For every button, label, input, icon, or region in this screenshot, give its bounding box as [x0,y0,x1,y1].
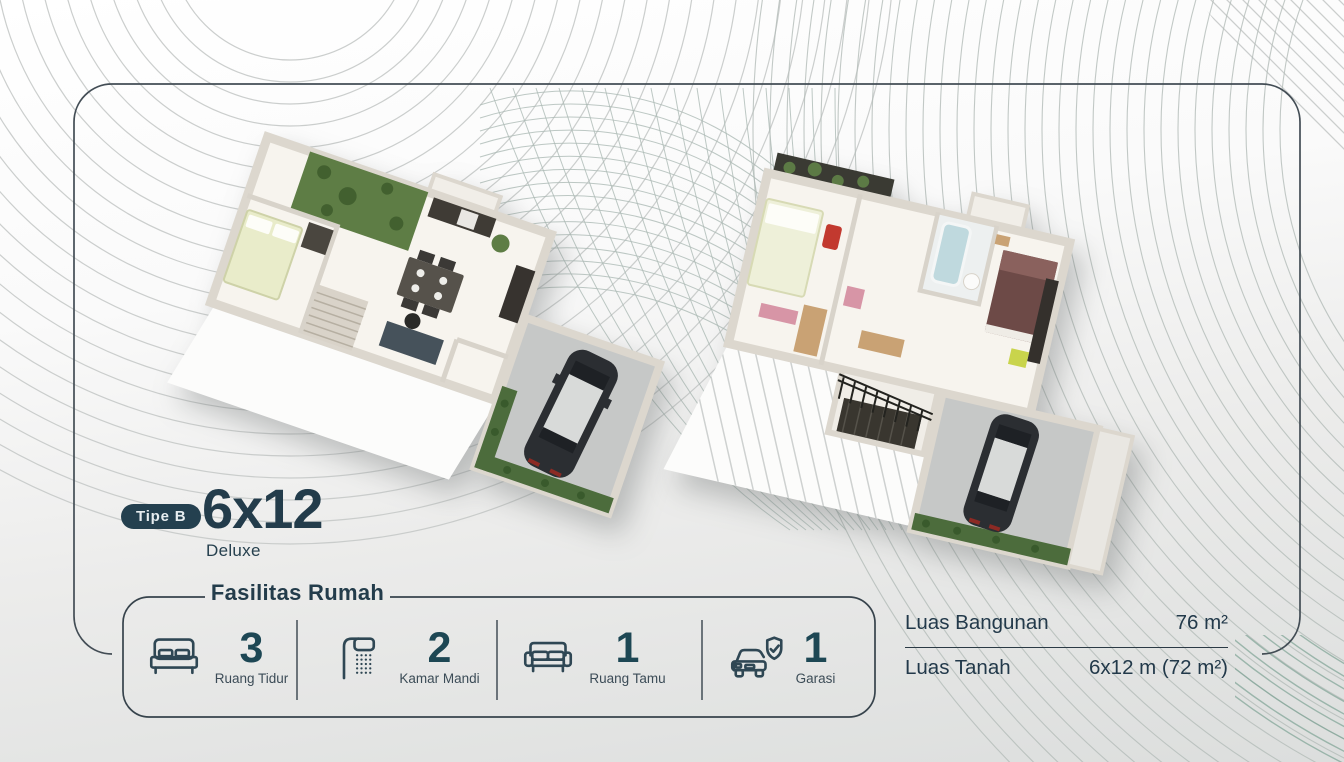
facility-living-room: 1 Ruang Tamu [499,628,687,686]
specs-divider [905,647,1228,648]
second-floor-plan [698,158,1198,568]
bedrooms-label: Ruang Tidur [215,671,289,686]
garage-count: 1 [804,628,828,669]
facility-bedrooms: 3 Ruang Tidur [123,628,311,686]
bathrooms-count: 2 [428,628,452,669]
car-shield-icon [727,629,783,685]
type-badge: Tipe B [121,504,201,529]
brochure-page: Tipe B 6x12 Deluxe Fasilitas Rumah 3 Rua… [0,0,1344,762]
land-area-label: Luas Tanah [905,656,1011,680]
garage-label: Garasi [796,671,836,686]
living-room-count: 1 [616,628,640,669]
bathrooms-label: Kamar Mandi [399,671,479,686]
bedrooms-count: 3 [240,628,264,669]
bed-icon [146,629,202,685]
specs-block: Luas Bangunan 76 m² Luas Tanah 6x12 m (7… [905,611,1228,689]
building-area-value: 76 m² [1176,611,1228,635]
sofa-icon [520,629,576,685]
living-room-label: Ruang Tamu [589,671,665,686]
facility-garage: 1 Garasi [687,628,875,686]
facilities-items: 3 Ruang Tidur 2 Kamar Mandi [123,601,875,713]
facility-bathrooms: 2 Kamar Mandi [311,628,499,686]
spec-row-building-area: Luas Bangunan 76 m² [905,611,1228,644]
building-area-label: Luas Bangunan [905,611,1049,635]
shower-icon [330,629,386,685]
variant-label: Deluxe [206,541,261,561]
land-area-value: 6x12 m (72 m²) [1089,656,1228,680]
spec-row-land-area: Luas Tanah 6x12 m (72 m²) [905,656,1228,689]
size-title: 6x12 [202,481,323,537]
garage [911,393,1132,573]
